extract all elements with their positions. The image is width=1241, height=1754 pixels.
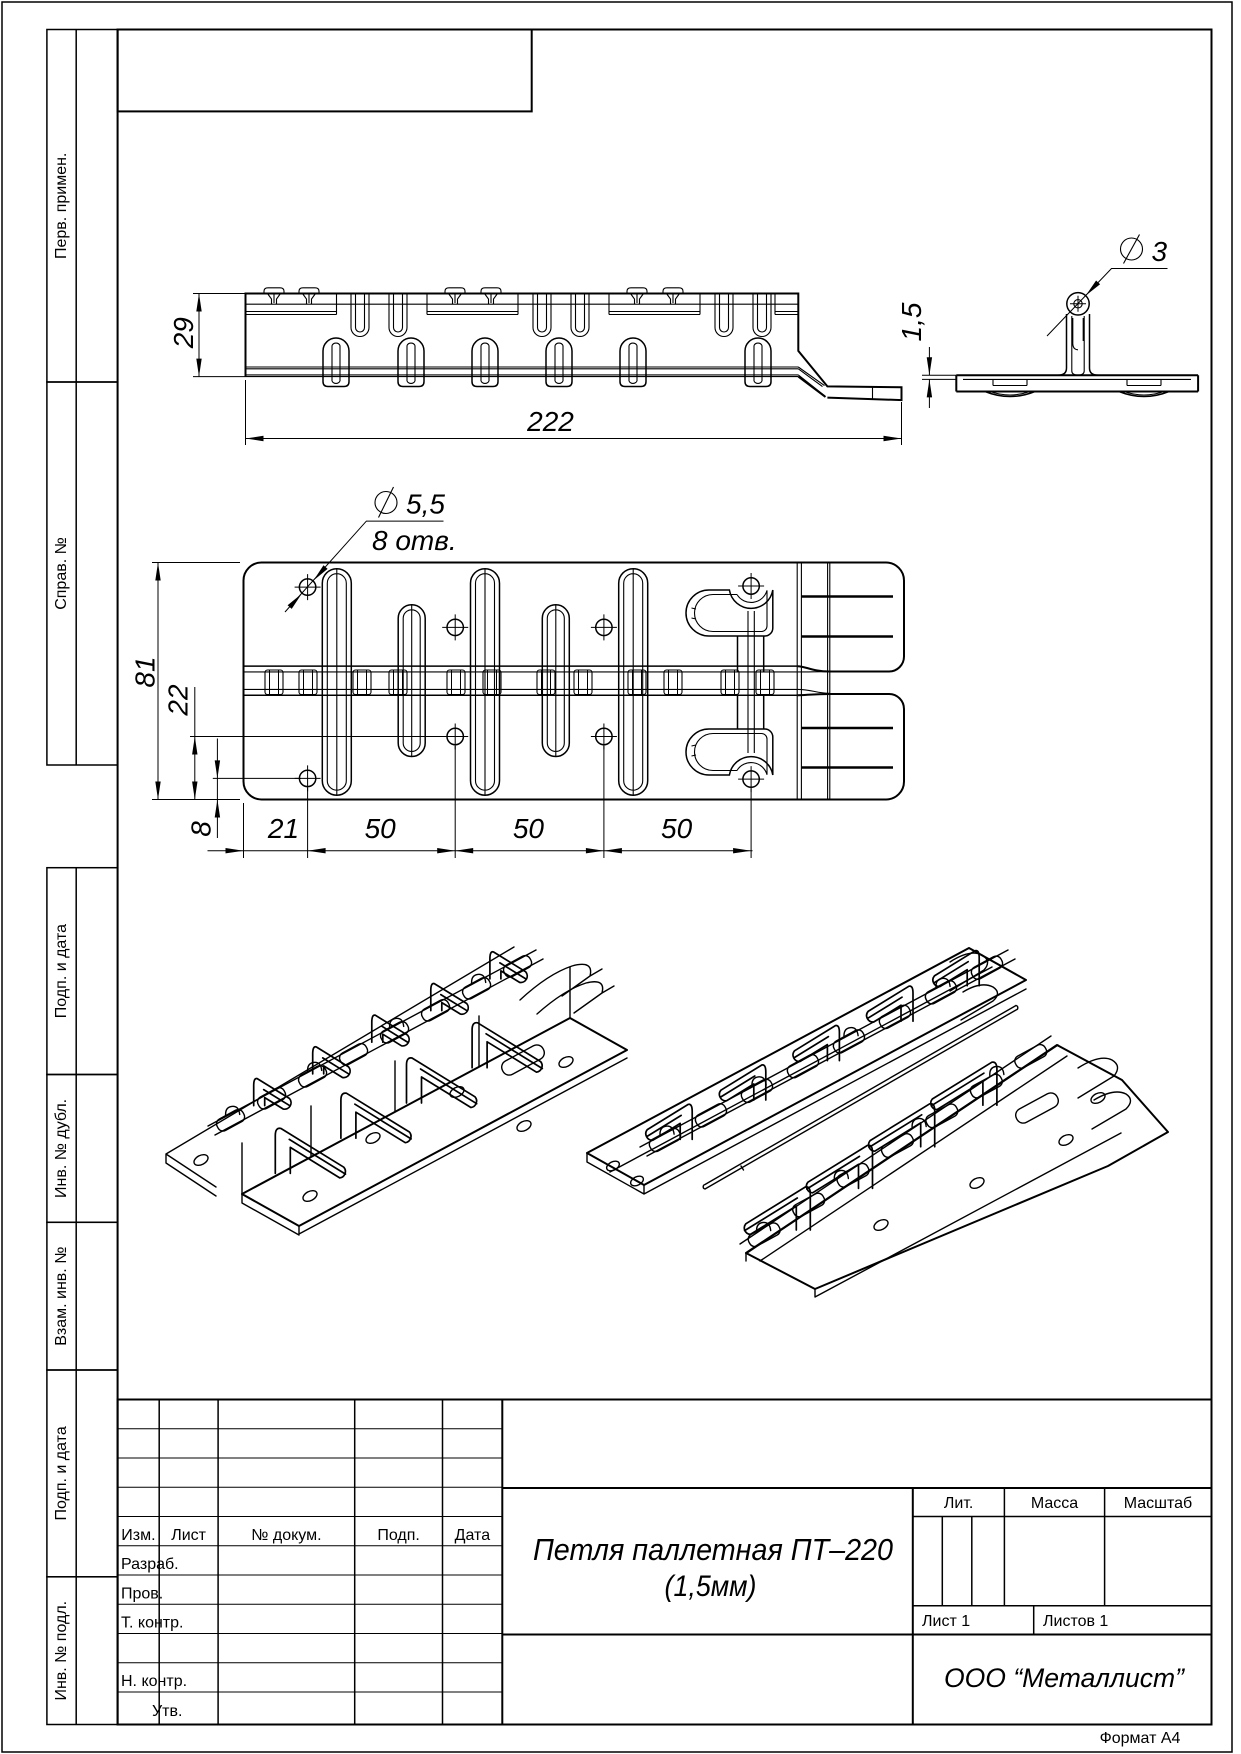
- svg-text:Дата: Дата: [455, 1527, 491, 1544]
- svg-text:222: 222: [526, 406, 574, 437]
- svg-text:Т. контр.: Т. контр.: [121, 1615, 183, 1632]
- svg-text:Взам. инв. №: Взам. инв. №: [53, 1247, 70, 1346]
- svg-text:21: 21: [267, 813, 299, 844]
- svg-text:Петля паллетная ПТ–220: Петля паллетная ПТ–220: [533, 1532, 893, 1567]
- svg-text:Утв.: Утв.: [152, 1703, 182, 1720]
- svg-text:Перв. примен.: Перв. примен.: [53, 153, 70, 259]
- svg-text:Подп. и дата: Подп. и дата: [53, 924, 70, 1018]
- svg-text:Справ. №: Справ. №: [53, 537, 70, 610]
- svg-text:29: 29: [168, 317, 199, 349]
- svg-text:Подп. и дата: Подп. и дата: [53, 1426, 70, 1520]
- svg-text:Изм.: Изм.: [121, 1527, 155, 1544]
- svg-text:Пров.: Пров.: [121, 1586, 163, 1603]
- svg-text:ООО “Металлист”: ООО “Металлист”: [944, 1663, 1185, 1693]
- svg-text:Лит.: Лит.: [944, 1495, 973, 1512]
- svg-text:(1,5мм): (1,5мм): [665, 1570, 757, 1603]
- svg-text:22: 22: [163, 684, 194, 717]
- svg-text:Разраб.: Разраб.: [121, 1556, 179, 1573]
- svg-text:8 отв.: 8 отв.: [372, 525, 457, 556]
- svg-text:3: 3: [1152, 236, 1168, 267]
- svg-text:Листов 1: Листов 1: [1043, 1613, 1108, 1630]
- svg-text:8: 8: [186, 821, 217, 837]
- svg-text:Лист 1: Лист 1: [922, 1613, 970, 1630]
- svg-text:Масса: Масса: [1031, 1495, 1078, 1512]
- svg-text:Подп.: Подп.: [377, 1527, 420, 1544]
- svg-text:№ докум.: № докум.: [251, 1527, 321, 1544]
- svg-text:81: 81: [130, 656, 161, 687]
- svg-text:Формат А4: Формат А4: [1100, 1730, 1181, 1747]
- svg-text:5,5: 5,5: [406, 489, 445, 520]
- svg-text:Н. контр.: Н. контр.: [121, 1673, 187, 1690]
- svg-text:Лист: Лист: [171, 1527, 206, 1544]
- svg-text:Инв. № подл.: Инв. № подл.: [53, 1601, 70, 1701]
- svg-text:1,5: 1,5: [896, 302, 927, 341]
- svg-text:50: 50: [661, 813, 693, 844]
- svg-text:Инв. № дубл.: Инв. № дубл.: [53, 1099, 70, 1198]
- svg-text:50: 50: [513, 813, 545, 844]
- svg-text:50: 50: [365, 813, 397, 844]
- svg-text:Масштаб: Масштаб: [1124, 1495, 1192, 1512]
